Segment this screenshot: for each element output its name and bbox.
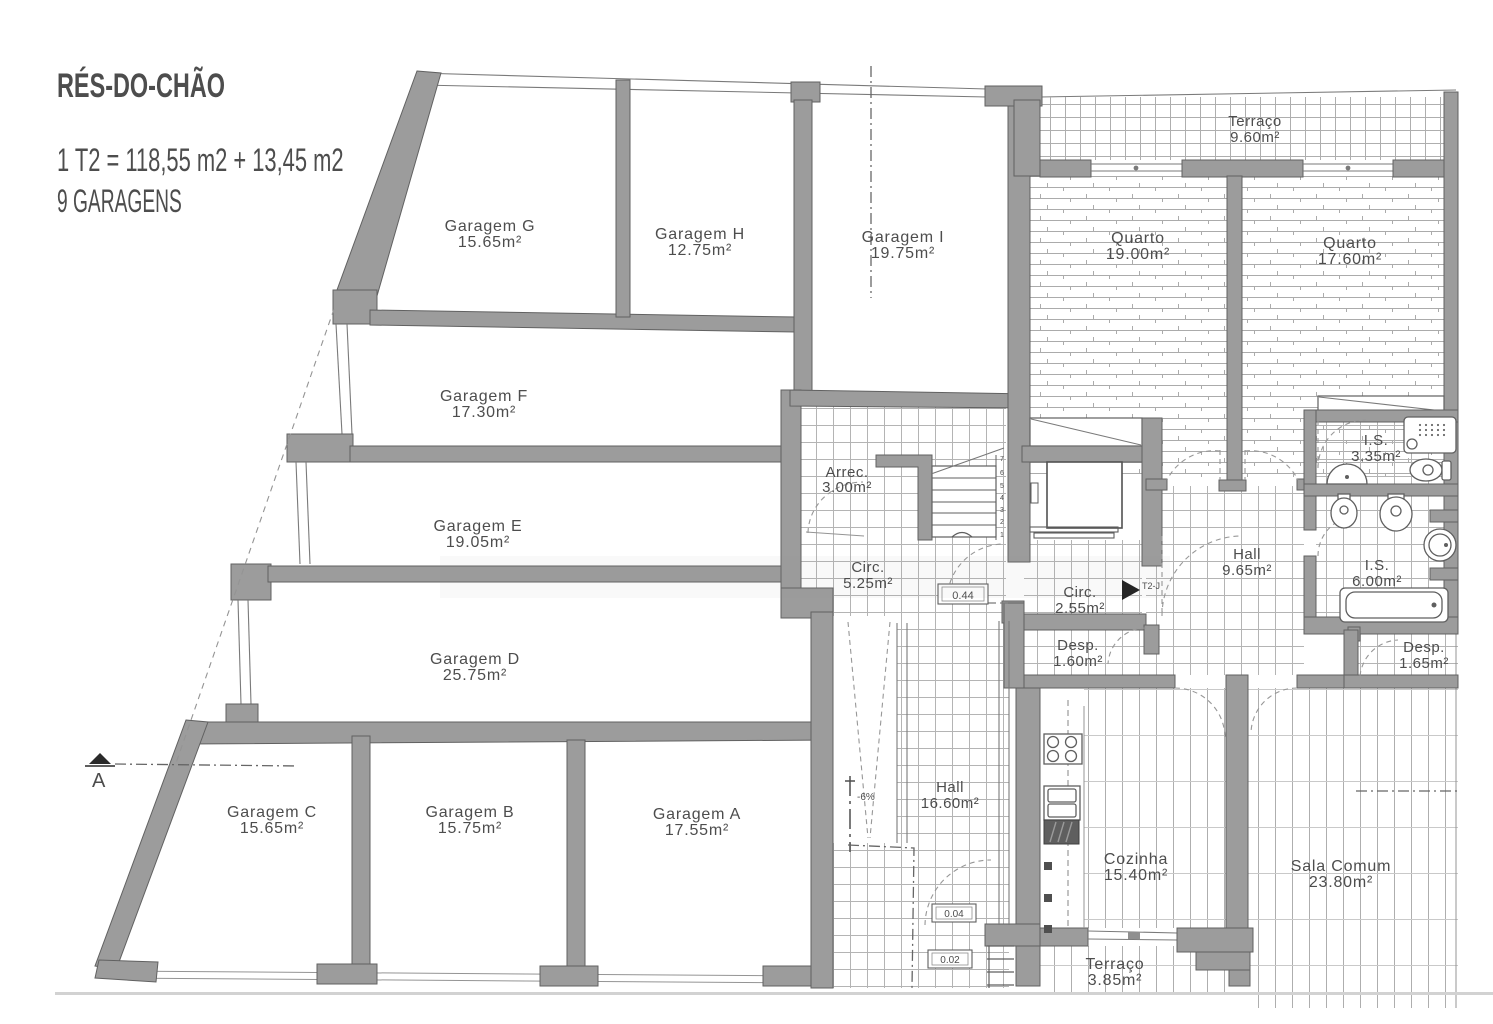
svg-text:Hall: Hall xyxy=(1233,546,1261,563)
svg-text:1 T2 = 118,55 m2 + 13,45 m2: 1 T2 = 118,55 m2 + 13,45 m2 xyxy=(57,142,344,178)
svg-text:Desp.: Desp. xyxy=(1057,637,1099,654)
svg-text:Garagem C: Garagem C xyxy=(227,804,317,821)
svg-text:0.02: 0.02 xyxy=(940,955,960,966)
svg-text:I.S.: I.S. xyxy=(1364,432,1389,449)
svg-text:6.00m²: 6.00m² xyxy=(1352,573,1402,590)
svg-text:Quarto: Quarto xyxy=(1323,235,1377,252)
svg-text:5.25m²: 5.25m² xyxy=(843,575,893,592)
svg-text:1: 1 xyxy=(1000,532,1004,539)
svg-text:Garagem D: Garagem D xyxy=(430,651,520,668)
svg-text:0.04: 0.04 xyxy=(944,909,964,920)
svg-text:25.75m²: 25.75m² xyxy=(443,667,507,684)
svg-text:Cozinha: Cozinha xyxy=(1104,851,1168,868)
svg-text:17.60m²: 17.60m² xyxy=(1318,251,1382,268)
svg-text:Garagem H: Garagem H xyxy=(655,226,745,243)
svg-text:2: 2 xyxy=(1000,519,1004,526)
svg-text:3: 3 xyxy=(1000,507,1004,514)
svg-text:15.75m²: 15.75m² xyxy=(438,820,502,837)
svg-text:I.S.: I.S. xyxy=(1365,557,1390,574)
svg-text:Terraço: Terraço xyxy=(1228,113,1282,130)
svg-text:19.00m²: 19.00m² xyxy=(1106,246,1170,263)
svg-text:3.35m²: 3.35m² xyxy=(1351,448,1401,465)
svg-text:3.00m²: 3.00m² xyxy=(822,479,872,496)
svg-text:Garagem I: Garagem I xyxy=(862,229,945,246)
svg-text:15.40m²: 15.40m² xyxy=(1104,867,1168,884)
svg-text:RÉS-DO-CHÃO: RÉS-DO-CHÃO xyxy=(57,66,225,106)
svg-text:Circ.: Circ. xyxy=(851,559,884,576)
svg-text:16.60m²: 16.60m² xyxy=(921,795,980,812)
svg-text:19.05m²: 19.05m² xyxy=(446,534,510,551)
svg-text:-6%: -6% xyxy=(857,792,875,803)
svg-text:Desp.: Desp. xyxy=(1403,639,1445,656)
svg-text:6: 6 xyxy=(1000,470,1004,477)
svg-text:9.60m²: 9.60m² xyxy=(1230,129,1280,146)
svg-text:5: 5 xyxy=(1000,483,1004,490)
svg-text:Garagem A: Garagem A xyxy=(653,806,741,823)
svg-text:1.60m²: 1.60m² xyxy=(1053,653,1103,670)
svg-text:7: 7 xyxy=(1000,456,1004,463)
svg-text:9 GARAGENS: 9 GARAGENS xyxy=(57,183,182,219)
svg-text:Terraço: Terraço xyxy=(1086,956,1145,973)
svg-text:15.65m²: 15.65m² xyxy=(458,234,522,251)
svg-text:Hall: Hall xyxy=(936,779,964,796)
svg-text:19.75m²: 19.75m² xyxy=(871,245,935,262)
svg-text:15.65m²: 15.65m² xyxy=(240,820,304,837)
svg-text:Sala Comum: Sala Comum xyxy=(1291,858,1391,875)
svg-text:Garagem F: Garagem F xyxy=(440,388,528,405)
svg-text:Garagem G: Garagem G xyxy=(445,218,536,235)
svg-text:Garagem B: Garagem B xyxy=(425,804,514,821)
svg-text:Circ.: Circ. xyxy=(1063,584,1096,601)
svg-text:2.55m²: 2.55m² xyxy=(1055,600,1105,617)
svg-text:23.80m²: 23.80m² xyxy=(1309,874,1373,891)
svg-text:12.75m²: 12.75m² xyxy=(668,242,732,259)
svg-text:Garagem E: Garagem E xyxy=(433,518,522,535)
svg-text:3.85m²: 3.85m² xyxy=(1088,972,1143,989)
svg-text:A: A xyxy=(92,770,106,792)
svg-text:9.65m²: 9.65m² xyxy=(1222,562,1272,579)
svg-text:Quarto: Quarto xyxy=(1111,230,1165,247)
svg-text:1.65m²: 1.65m² xyxy=(1399,655,1449,672)
svg-text:17.55m²: 17.55m² xyxy=(665,822,729,839)
svg-text:17.30m²: 17.30m² xyxy=(452,404,516,421)
svg-text:4: 4 xyxy=(1000,495,1004,502)
